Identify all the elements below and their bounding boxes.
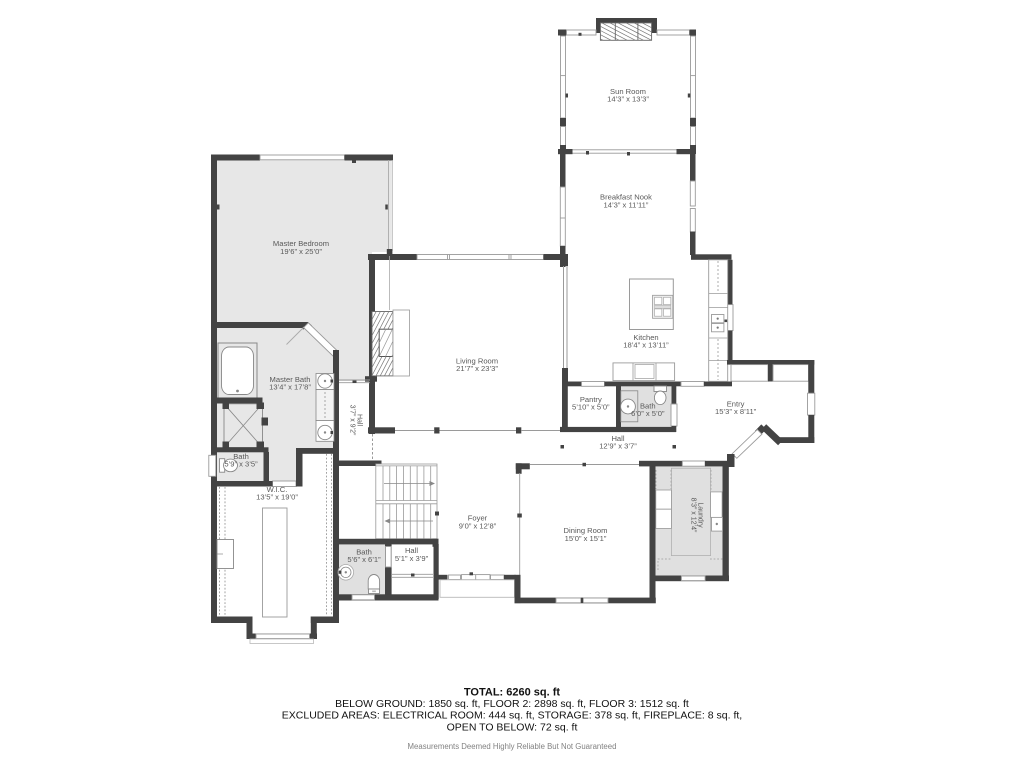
svg-text:6’0” x 5’0”: 6’0” x 5’0” bbox=[631, 409, 665, 418]
svg-text:TOTAL: 6260 sq. ft: TOTAL: 6260 sq. ft bbox=[464, 687, 561, 699]
svg-text:21’7” x 23’3”: 21’7” x 23’3” bbox=[456, 364, 498, 373]
svg-text:5’9” x 3’5”: 5’9” x 3’5” bbox=[224, 460, 258, 469]
svg-text:3’7” x 9’2”: 3’7” x 9’2” bbox=[349, 405, 356, 436]
svg-text:12’9” x 3’7”: 12’9” x 3’7” bbox=[599, 442, 637, 451]
svg-text:Measurements Deemed Highly Rel: Measurements Deemed Highly Reliable But … bbox=[408, 742, 617, 751]
svg-text:15’3” x 8’11”: 15’3” x 8’11” bbox=[715, 407, 757, 416]
svg-text:13’4” x 17’8”: 13’4” x 17’8” bbox=[269, 383, 311, 392]
svg-text:14’3” x 11’11”: 14’3” x 11’11” bbox=[604, 200, 649, 209]
svg-text:BELOW GROUND: 1850 sq. ft, FLO: BELOW GROUND: 1850 sq. ft, FLOOR 2: 2898… bbox=[335, 698, 689, 710]
svg-text:EXCLUDED AREAS: ELECTRICAL ROO: EXCLUDED AREAS: ELECTRICAL ROOM: 444 sq.… bbox=[282, 710, 742, 722]
svg-text:5’1” x 3’9”: 5’1” x 3’9” bbox=[395, 554, 429, 563]
svg-text:8’3” x 12’4”: 8’3” x 12’4” bbox=[690, 498, 697, 533]
svg-text:19’6” x 25’0”: 19’6” x 25’0” bbox=[280, 247, 322, 256]
svg-text:Laundry: Laundry bbox=[697, 502, 704, 528]
svg-text:13’5” x 19’0”: 13’5” x 19’0” bbox=[256, 493, 298, 502]
svg-text:5’10” x 5’0”: 5’10” x 5’0” bbox=[572, 403, 610, 412]
svg-text:18’4” x 13’11”: 18’4” x 13’11” bbox=[623, 341, 669, 350]
svg-text:OPEN TO BELOW: 72 sq. ft: OPEN TO BELOW: 72 sq. ft bbox=[447, 721, 578, 733]
svg-text:9’0” x 12’8”: 9’0” x 12’8” bbox=[459, 521, 497, 530]
svg-text:Hall: Hall bbox=[356, 414, 363, 427]
svg-text:5’6” x 6’1”: 5’6” x 6’1” bbox=[347, 555, 381, 564]
svg-text:14’3” x 13’3”: 14’3” x 13’3” bbox=[607, 94, 649, 103]
svg-text:15’0” x 15’1”: 15’0” x 15’1” bbox=[565, 534, 607, 543]
